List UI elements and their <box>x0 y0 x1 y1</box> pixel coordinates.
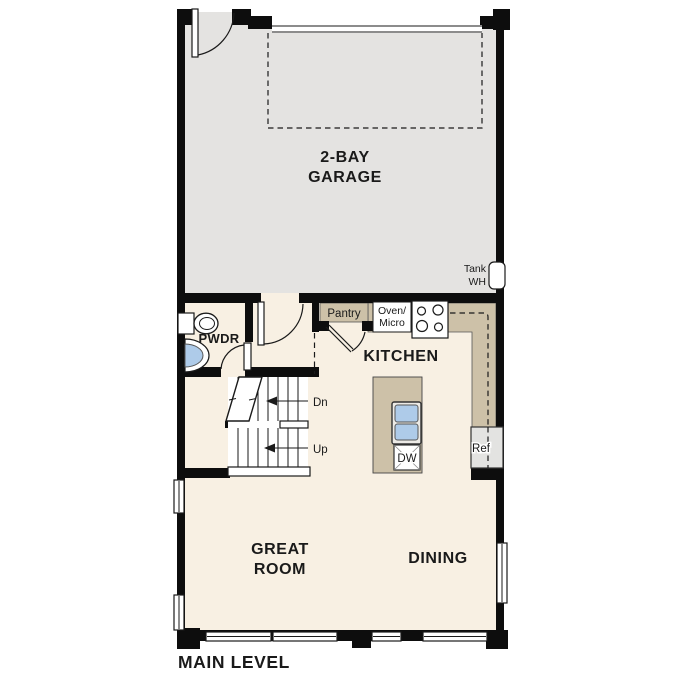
cooktop-burner <box>433 305 443 315</box>
island-fixtures: DW <box>392 402 421 470</box>
island-sink-basin <box>395 424 418 440</box>
floor-plan-svg: Tank WH PWDR Oven/ Micro <box>0 0 687 687</box>
stairs-up-label: Up <box>313 444 328 456</box>
wall-segment <box>362 321 374 331</box>
front-door-opening <box>194 12 232 25</box>
island-sink-basin <box>395 405 418 422</box>
wall-segment <box>177 468 230 478</box>
pantry-label: Pantry <box>327 308 360 320</box>
wall-segment <box>471 467 504 480</box>
great-room-label-line2: ROOM <box>254 561 306 578</box>
great-room-label-line1: GREAT <box>251 541 309 558</box>
dishwasher-label: DW <box>397 453 416 465</box>
oven-micro-label-line2: Micro <box>379 317 405 329</box>
driveway-gap <box>250 9 496 25</box>
garage-door <box>272 25 482 33</box>
stairs-down-label: Dn <box>313 397 328 409</box>
entry-door-leaf <box>258 302 264 345</box>
wall-segment <box>177 628 200 649</box>
refrigerator-label: Ref <box>472 443 491 455</box>
garage-label-line2: GARAGE <box>308 169 382 186</box>
toilet-tank <box>178 313 194 334</box>
wall-segment <box>352 630 371 648</box>
refrigerator: Ref <box>471 427 503 468</box>
oven-micro-label-line1: Oven/ <box>378 305 406 317</box>
garage-label-line1: 2-BAY <box>320 149 370 166</box>
wall-segment <box>248 16 272 29</box>
cooktop-burner <box>418 307 426 315</box>
powder-door-leaf <box>244 343 251 370</box>
plan-title: MAIN LEVEL <box>178 652 290 672</box>
kitchen-label: KITCHEN <box>363 348 438 365</box>
cooktop-burner <box>435 323 443 331</box>
wall-segment <box>318 321 329 331</box>
wall-segment <box>486 630 508 649</box>
wall-segment <box>245 367 319 377</box>
dining-label: DINING <box>408 550 468 567</box>
wall-segment <box>312 303 319 332</box>
water-heater-label-line2: WH <box>469 276 487 288</box>
cooktop-burner <box>417 321 428 332</box>
wall-segment <box>177 293 261 303</box>
stair-rail <box>280 421 308 428</box>
cooktop <box>412 301 448 338</box>
floor-plan-canvas: Tank WH PWDR Oven/ Micro <box>0 0 687 687</box>
water-heater-tank <box>489 262 505 289</box>
kitchen-appliances: Oven/ Micro <box>373 301 448 338</box>
powder-room-label: PWDR <box>199 331 240 346</box>
water-heater-label-line1: Tank <box>464 263 487 275</box>
wall-segment <box>245 303 253 342</box>
water-heater: Tank WH <box>464 262 505 289</box>
front-door-leaf <box>192 9 198 57</box>
stair-rail-bottom <box>228 467 310 476</box>
